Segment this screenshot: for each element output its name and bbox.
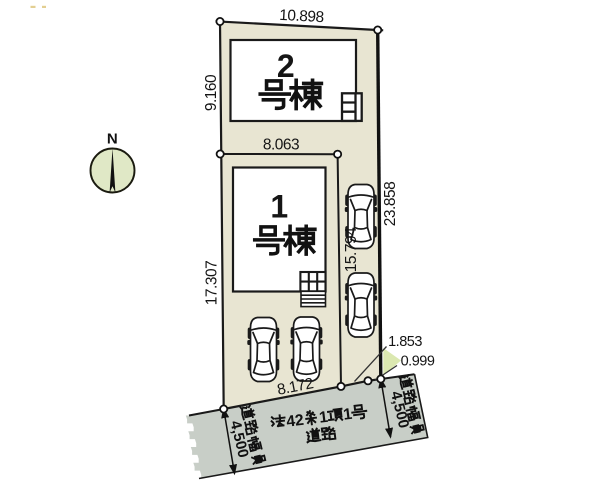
svg-text:0.999: 0.999 [401,354,435,370]
svg-text:2: 2 [277,48,294,84]
svg-text:15.794: 15.794 [343,227,360,272]
svg-text:1.853: 1.853 [388,334,422,350]
svg-text:1: 1 [270,188,287,224]
svg-text:10.898: 10.898 [279,7,324,26]
svg-text:8.063: 8.063 [263,137,299,154]
svg-text:23.858: 23.858 [382,182,399,226]
svg-text:9.160: 9.160 [203,74,220,111]
svg-text:N: N [107,130,118,147]
svg-text:17.307: 17.307 [204,261,221,305]
